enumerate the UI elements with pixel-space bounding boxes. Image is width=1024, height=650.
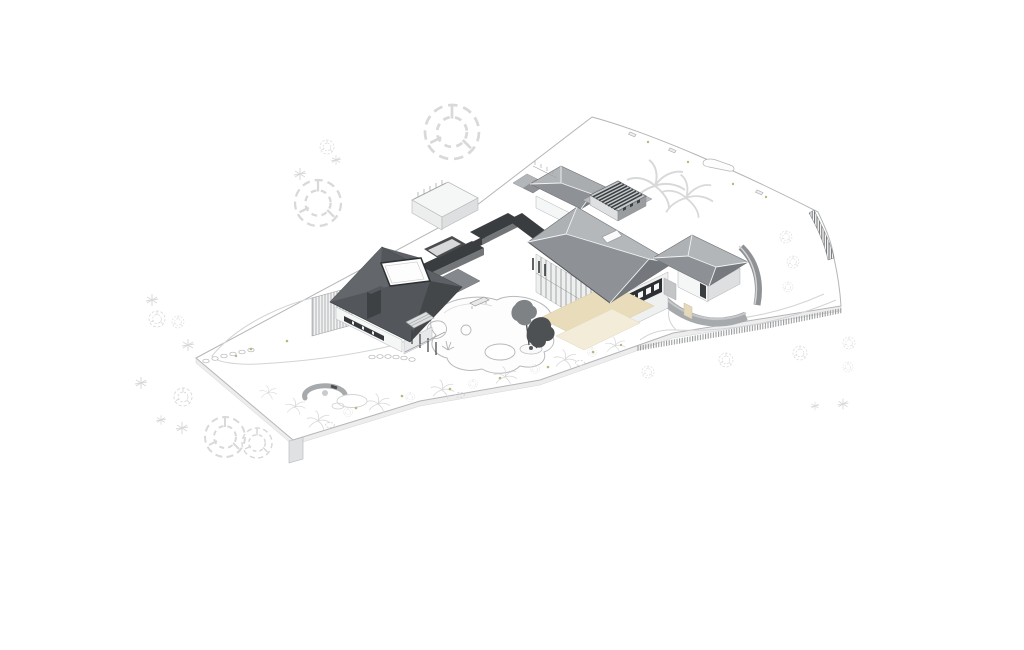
pond-island: [485, 344, 515, 360]
drawing-canvas: [0, 0, 1024, 650]
site-boundary: [196, 117, 841, 440]
plate-support-leg: [289, 437, 303, 463]
architectural-axonometric-drawing: [0, 0, 1024, 650]
site-plate: [196, 117, 841, 463]
flat-rooflight: [381, 258, 430, 286]
